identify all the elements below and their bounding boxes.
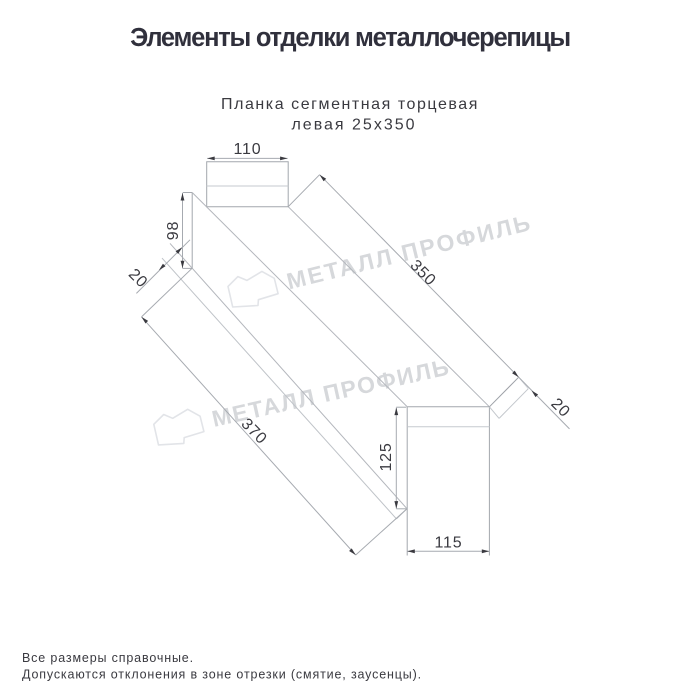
svg-text:Все размеры справочные.: Все размеры справочные. (22, 651, 194, 665)
svg-text:110: 110 (234, 141, 262, 158)
svg-text:левая 25х350: левая 25х350 (291, 117, 416, 134)
svg-text:Элементы отделки металлочерепи: Элементы отделки металлочерепицы (130, 24, 570, 52)
svg-text:20: 20 (547, 395, 573, 421)
svg-text:115: 115 (435, 535, 463, 552)
svg-text:125: 125 (378, 442, 395, 471)
svg-text:МЕТАЛЛ ПРОФИЛЬ: МЕТАЛЛ ПРОФИЛЬ (284, 209, 535, 294)
svg-text:20: 20 (125, 266, 151, 292)
svg-text:Допускаются отклонения в зоне: Допускаются отклонения в зоне отрезки (с… (22, 668, 422, 682)
svg-text:98: 98 (165, 221, 182, 240)
svg-text:Планка сегментная торцевая: Планка сегментная торцевая (221, 96, 479, 113)
